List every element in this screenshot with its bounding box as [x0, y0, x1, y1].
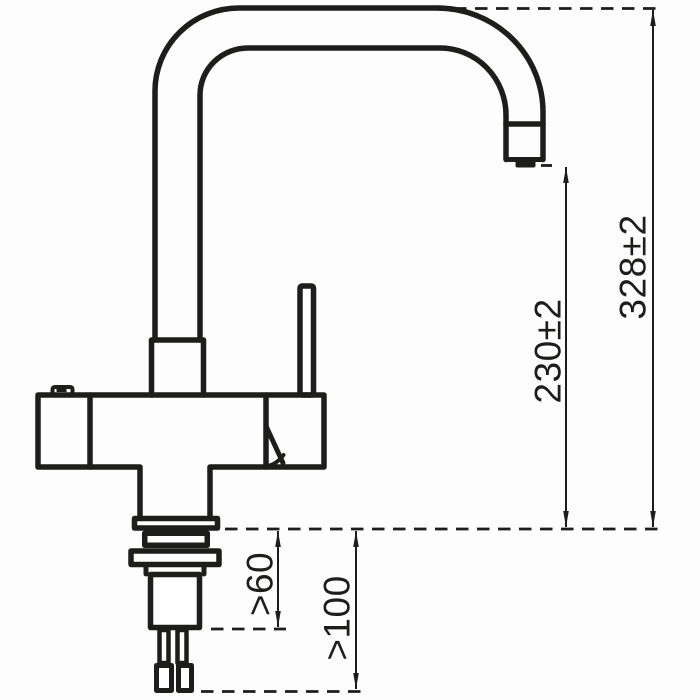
threaded-shank	[151, 575, 200, 628]
hose-connector-right	[179, 666, 192, 691]
technical-drawing-canvas: 328±2 230±2 >60 >100	[0, 0, 700, 700]
hose-connector-left	[157, 666, 172, 691]
lever-handle-bar	[300, 286, 314, 395]
dim-label-overall-height: 328±2	[613, 214, 654, 319]
dim-label-min-60: >60	[240, 552, 281, 616]
supply-hose-left	[160, 630, 169, 663]
aerator-tip	[516, 160, 536, 168]
mounting-flange-upper	[135, 519, 218, 529]
dim-label-spout-outlet-height: 230±2	[528, 298, 569, 403]
mounting-flange-lower	[131, 551, 219, 565]
faucet-dimension-diagram: 328±2 230±2 >60 >100	[0, 0, 700, 700]
control-tab-indicator	[57, 388, 67, 392]
dim-label-min-100: >100	[317, 575, 358, 660]
supply-hose-right	[178, 630, 187, 663]
locking-ring	[145, 533, 208, 545]
